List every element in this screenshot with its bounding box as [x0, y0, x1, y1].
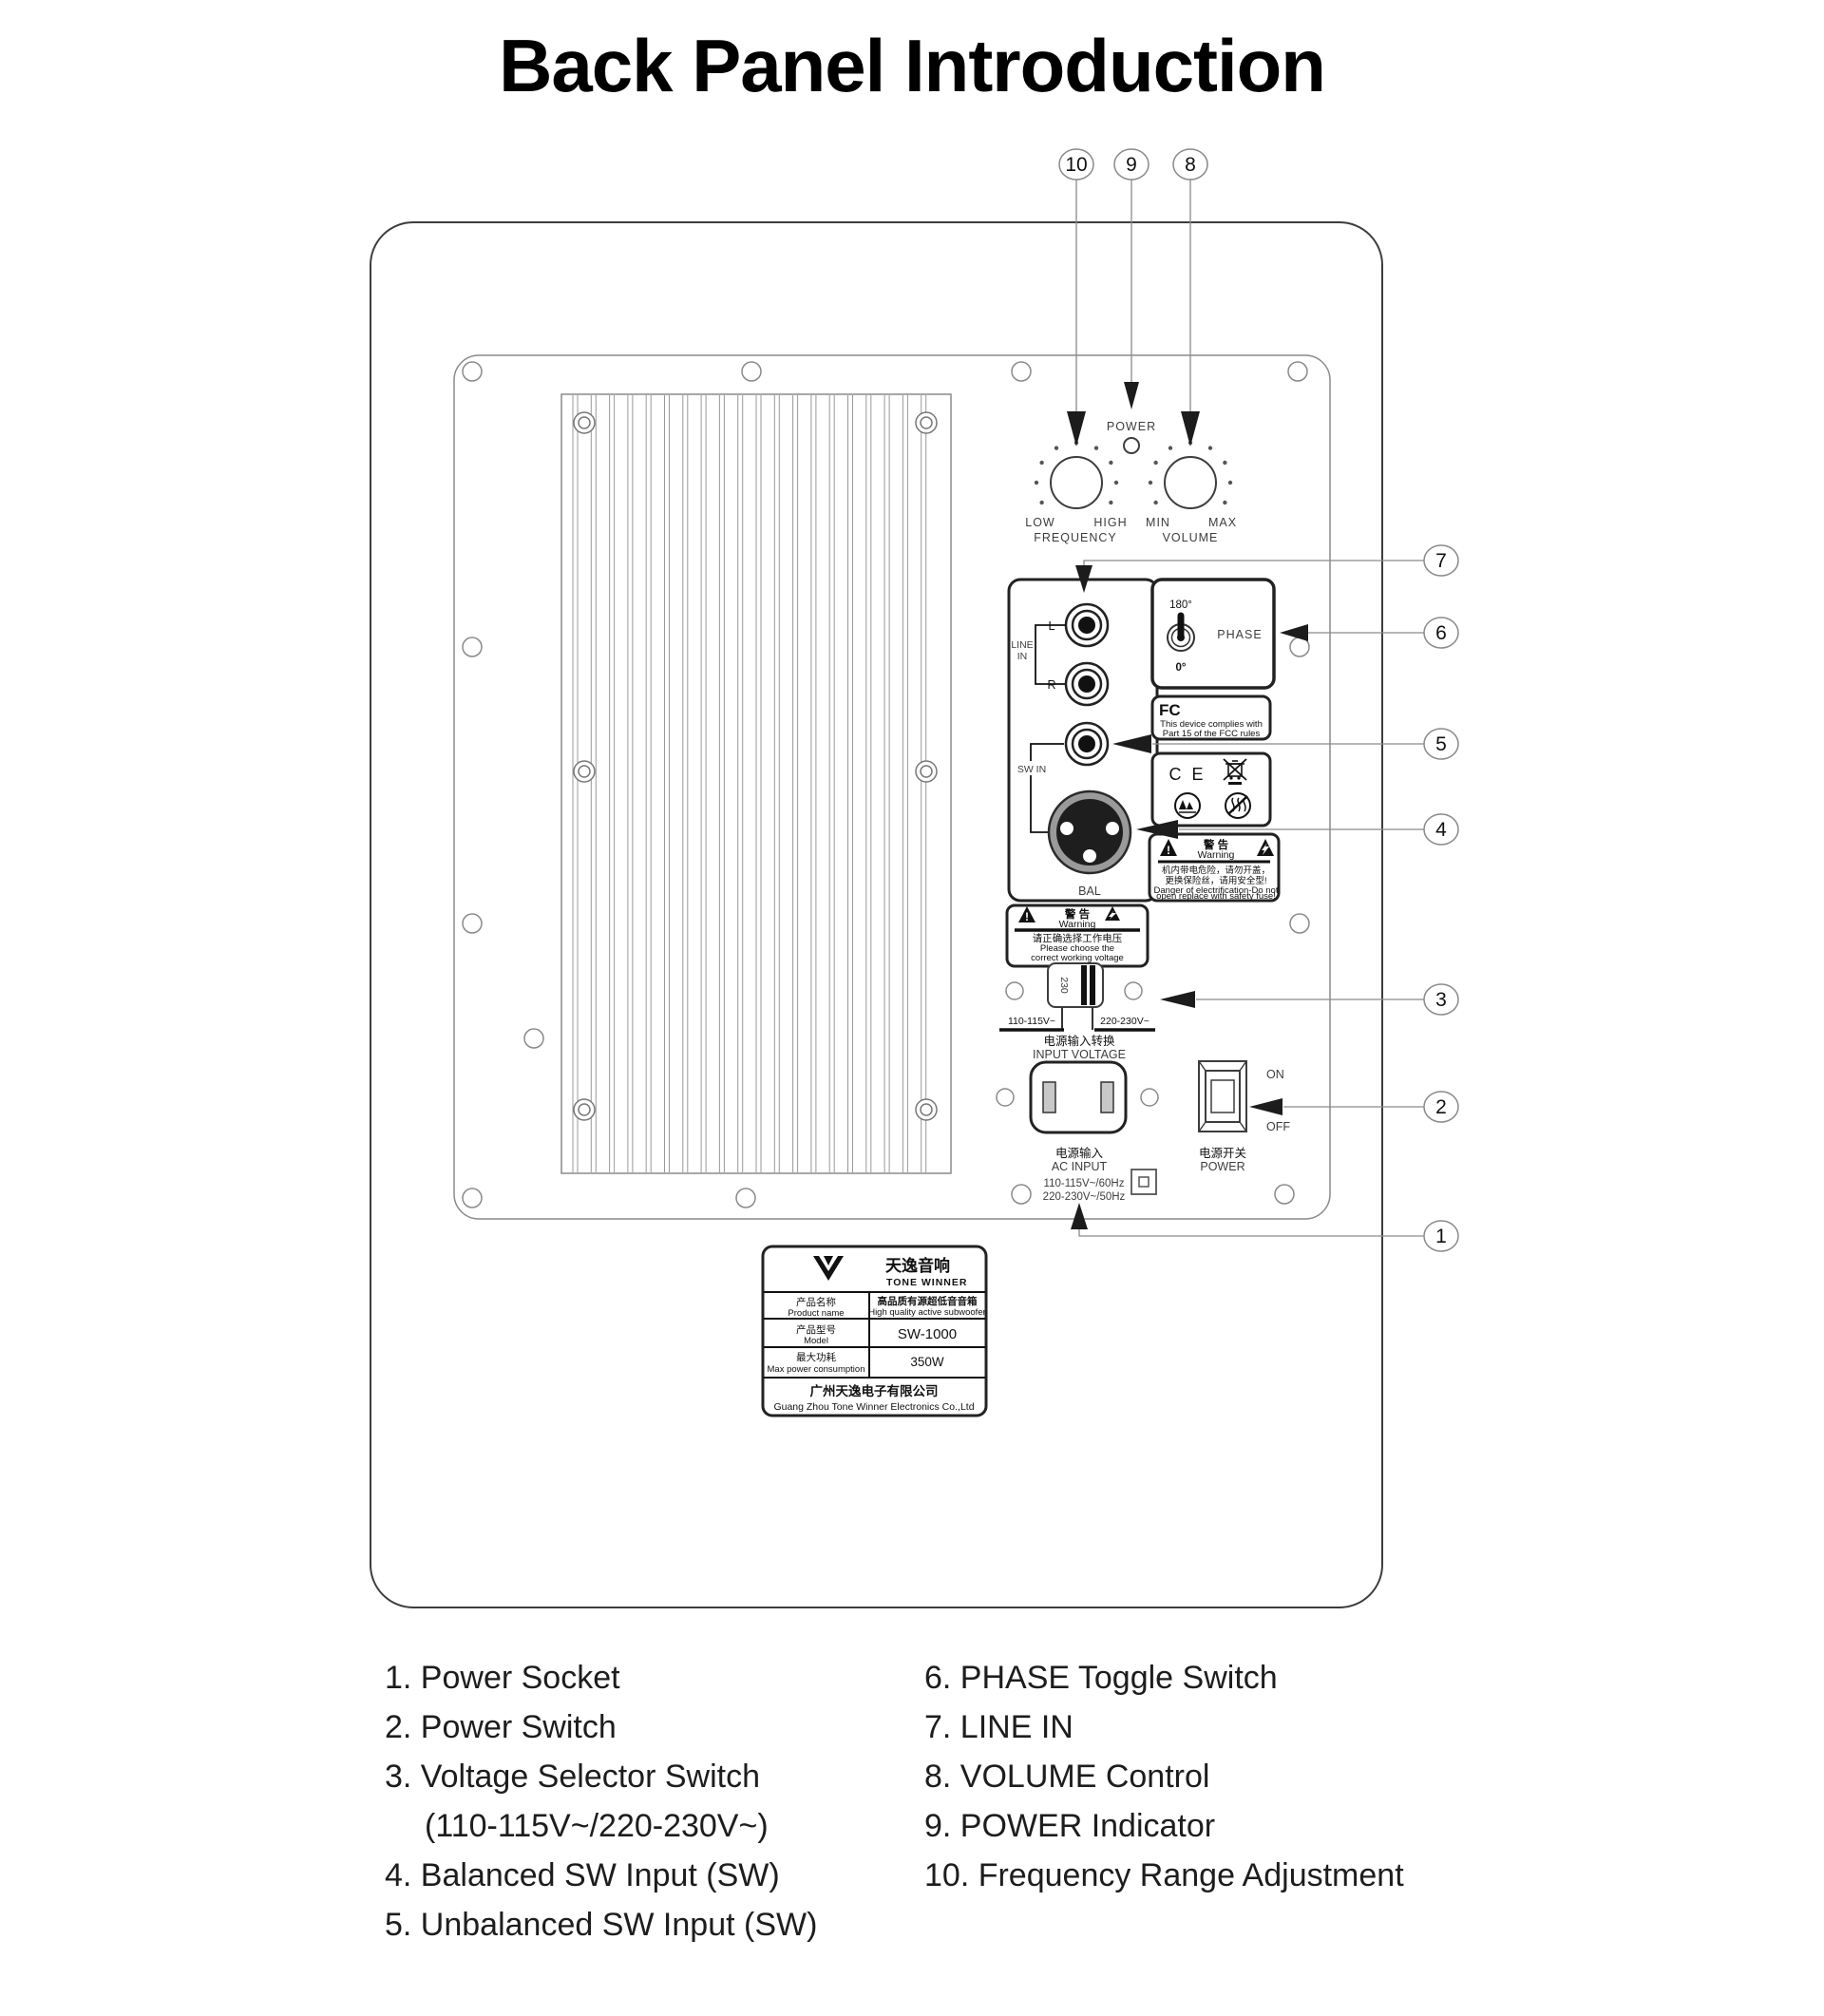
heatsink: [561, 394, 951, 1173]
legend-item-10: 10. Frequency Range Adjustment: [924, 1851, 1404, 1900]
ac-input-rating-2: 220-230V~/50Hz: [1043, 1191, 1126, 1203]
fuse-warning-title-en: Warning: [1198, 849, 1235, 861]
legend-item-7: 7. LINE IN: [924, 1702, 1404, 1752]
label-row3-key-cn: 最大功耗: [796, 1351, 836, 1363]
legend-item-5: 5. Unbalanced SW Input (SW): [385, 1900, 817, 1949]
right-channel-label: R: [1047, 678, 1055, 692]
fuse-warning-line-4: open replace with safety fuse!: [1156, 891, 1276, 902]
product-rating-label: 天逸音响 TONE WINNER 产品名称 Product name 高品质有源…: [763, 1246, 986, 1416]
svg-text:7: 7: [1435, 550, 1447, 572]
fcc-line-2: Part 15 of the FCC rules: [1163, 729, 1261, 739]
svg-text:!: !: [1025, 910, 1029, 923]
ac-input-caption-cn: 电源输入: [1055, 1146, 1104, 1160]
ac-input-caption-en: AC INPUT: [1052, 1160, 1108, 1173]
ac-power-socket[interactable]: [1031, 1062, 1126, 1132]
certification-section: C E: [1152, 753, 1270, 826]
legend-item-3-continued: (110-115V~/220-230V~): [385, 1801, 817, 1851]
legend-right-column: 6. PHASE Toggle Switch 7. LINE IN 8. VOL…: [924, 1653, 1404, 1900]
voltage-selector-value: 230: [1058, 977, 1070, 994]
fcc-logo-icon: FC: [1159, 701, 1181, 719]
svg-text:10: 10: [1065, 154, 1087, 176]
callout-8: 8: [1173, 149, 1207, 180]
label-power-value: 350W: [910, 1355, 944, 1369]
company-name-cn: 广州天逸电子有限公司: [810, 1383, 939, 1398]
label-row3-key-en: Max power consumption: [768, 1364, 865, 1375]
legend-item-6: 6. PHASE Toggle Switch: [924, 1653, 1404, 1702]
brand-name-cn: 天逸音响: [885, 1256, 950, 1275]
ce-mark-icon: C E: [1168, 765, 1206, 784]
voltage-warning-line-3: correct working voltage: [1031, 953, 1124, 963]
frequency-high-label: HIGH: [1093, 516, 1127, 529]
fcc-section: FC This device complies with Part 15 of …: [1152, 696, 1270, 739]
voltage-warning-label: ! 警 告 Warning 请正确选择工作电压 Please choose th…: [1007, 905, 1148, 966]
phase-section: 180° 0° PHASE: [1152, 580, 1274, 688]
callout-9: 9: [1114, 149, 1149, 180]
left-channel-label: L: [1049, 619, 1055, 633]
callout-4: 4: [1424, 814, 1458, 845]
callout-1: 1: [1424, 1221, 1458, 1251]
sw-in-label: SW IN: [1017, 764, 1046, 775]
label-model-value: SW-1000: [898, 1326, 957, 1342]
volume-min-label: MIN: [1146, 516, 1170, 529]
input-voltage-caption-cn: 电源输入转换: [1043, 1034, 1115, 1048]
svg-text:6: 6: [1435, 622, 1447, 644]
power-switch-caption-en: POWER: [1200, 1160, 1244, 1173]
socket-prong-left: [1043, 1082, 1055, 1113]
no-hot-surface-icon: [1225, 793, 1250, 818]
callout-2: 2: [1424, 1092, 1458, 1122]
svg-text:4: 4: [1435, 819, 1447, 841]
phase-180-label: 180°: [1169, 599, 1192, 611]
svg-text:!: !: [1167, 844, 1170, 857]
legend-left-column: 1. Power Socket 2. Power Switch 3. Volta…: [385, 1653, 817, 1949]
power-on-label: ON: [1266, 1068, 1284, 1081]
power-led-label: POWER: [1107, 420, 1156, 433]
bal-label: BAL: [1078, 884, 1101, 898]
volume-caption: VOLUME: [1163, 531, 1219, 544]
fuse-warning-label: ! 警 告 Warning 机内带电危险，请勿开盖， 更换保险丝，请用安全型! …: [1149, 834, 1279, 902]
callout-5: 5: [1424, 729, 1458, 759]
callout-3: 3: [1424, 984, 1458, 1015]
label-row1-value-cn: 高品质有源超低音音箱: [878, 1295, 978, 1307]
line-in-label-1: LINE: [1011, 639, 1033, 651]
socket-prong-right: [1101, 1082, 1113, 1113]
svg-text:3: 3: [1435, 989, 1447, 1011]
label-row2-key-cn: 产品型号: [796, 1323, 836, 1336]
legend-item-1: 1. Power Socket: [385, 1653, 817, 1702]
svg-text:8: 8: [1185, 154, 1196, 176]
line-in-right-jack[interactable]: [1066, 663, 1108, 705]
power-switch[interactable]: [1199, 1061, 1246, 1132]
legend-item-9: 9. POWER Indicator: [924, 1801, 1404, 1851]
brand-name-en: TONE WINNER: [886, 1277, 967, 1288]
power-off-label: OFF: [1266, 1120, 1290, 1133]
frequency-low-label: LOW: [1025, 516, 1054, 529]
legend-item-8: 8. VOLUME Control: [924, 1752, 1404, 1801]
callout-7: 7: [1424, 545, 1458, 576]
input-voltage-caption-en: INPUT VOLTAGE: [1033, 1048, 1126, 1061]
power-led: [1124, 438, 1139, 453]
voltage-warning-title-en: Warning: [1059, 919, 1096, 930]
label-row1-key-en: Product name: [788, 1308, 844, 1319]
svg-text:5: 5: [1435, 733, 1447, 755]
power-switch-caption-cn: 电源开关: [1199, 1147, 1246, 1160]
callout-10: 10: [1059, 149, 1093, 180]
altitude-cert-icon: [1175, 793, 1200, 818]
legend-item-4: 4. Balanced SW Input (SW): [385, 1851, 817, 1900]
voltage-low-range-label: 110-115V~: [1008, 1016, 1055, 1027]
callout-6: 6: [1424, 618, 1458, 648]
phase-label: PHASE: [1217, 628, 1262, 641]
ac-input-rating-1: 110-115V~/60Hz: [1044, 1178, 1125, 1189]
volume-max-label: MAX: [1208, 516, 1237, 529]
legend-item-3: 3. Voltage Selector Switch: [385, 1752, 817, 1801]
phase-0-label: 0°: [1176, 662, 1187, 674]
label-row1-key-cn: 产品名称: [796, 1296, 836, 1308]
label-row1-value-en: High quality active subwoofer: [868, 1307, 986, 1318]
line-in-label-2: IN: [1017, 651, 1028, 662]
label-row2-key-en: Model: [804, 1336, 828, 1346]
svg-text:1: 1: [1435, 1226, 1447, 1247]
svg-text:9: 9: [1126, 154, 1137, 176]
xlr-balanced-connector[interactable]: [1049, 791, 1130, 873]
line-in-left-jack[interactable]: [1066, 604, 1108, 646]
back-panel-introduction-page: Back Panel Introduction POWER LOW HIGH F…: [0, 0, 1824, 2016]
voltage-high-range-label: 220-230V~: [1100, 1016, 1149, 1027]
sw-in-jack[interactable]: [1066, 723, 1108, 765]
back-panel-diagram: POWER LOW HIGH FREQUENCY MIN MAX VOLUME …: [0, 0, 1824, 2016]
frequency-caption: FREQUENCY: [1034, 531, 1116, 544]
legend-item-2: 2. Power Switch: [385, 1702, 817, 1752]
svg-text:2: 2: [1435, 1096, 1447, 1118]
fuse-warning-line-1: 机内带电危险，请勿开盖，: [1162, 865, 1270, 876]
company-name-en: Guang Zhou Tone Winner Electronics Co.,L…: [773, 1401, 974, 1413]
